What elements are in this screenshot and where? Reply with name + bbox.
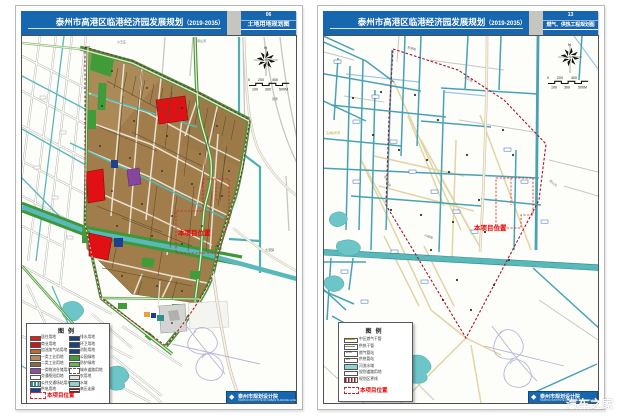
- svg-text:400: 400: [272, 78, 278, 82]
- svg-text:100: 100: [252, 88, 258, 92]
- svg-text:0: 0: [547, 76, 549, 80]
- svg-text:周山河: 周山河: [548, 178, 558, 188]
- svg-text:本项目位置: 本项目位置: [474, 223, 507, 232]
- svg-text:兴园路: 兴园路: [424, 232, 434, 240]
- svg-text:N: N: [568, 42, 571, 47]
- svg-text:张家: 张家: [272, 96, 278, 101]
- svg-text:200: 200: [258, 78, 264, 82]
- svg-text:300: 300: [564, 86, 570, 90]
- svg-text:N: N: [264, 45, 267, 50]
- svg-text:500M: 500M: [578, 86, 587, 90]
- svg-text:泰港路: 泰港路: [407, 44, 417, 52]
- svg-text:0: 0: [248, 78, 250, 82]
- svg-text:100: 100: [551, 86, 557, 90]
- svg-text:300: 300: [265, 88, 271, 92]
- svg-text:小王庄: 小王庄: [117, 39, 126, 44]
- svg-text:临港大道: 临港大道: [383, 174, 393, 187]
- svg-text:200: 200: [557, 76, 563, 80]
- svg-text:周山河: 周山河: [197, 38, 206, 43]
- svg-text:汪(杨)界河: 汪(杨)界河: [326, 130, 340, 135]
- svg-text:大泗镇: 大泗镇: [265, 247, 274, 252]
- svg-text:400: 400: [571, 76, 577, 80]
- svg-text:500M: 500M: [279, 88, 288, 92]
- svg-text:本项目位置: 本项目位置: [178, 228, 211, 237]
